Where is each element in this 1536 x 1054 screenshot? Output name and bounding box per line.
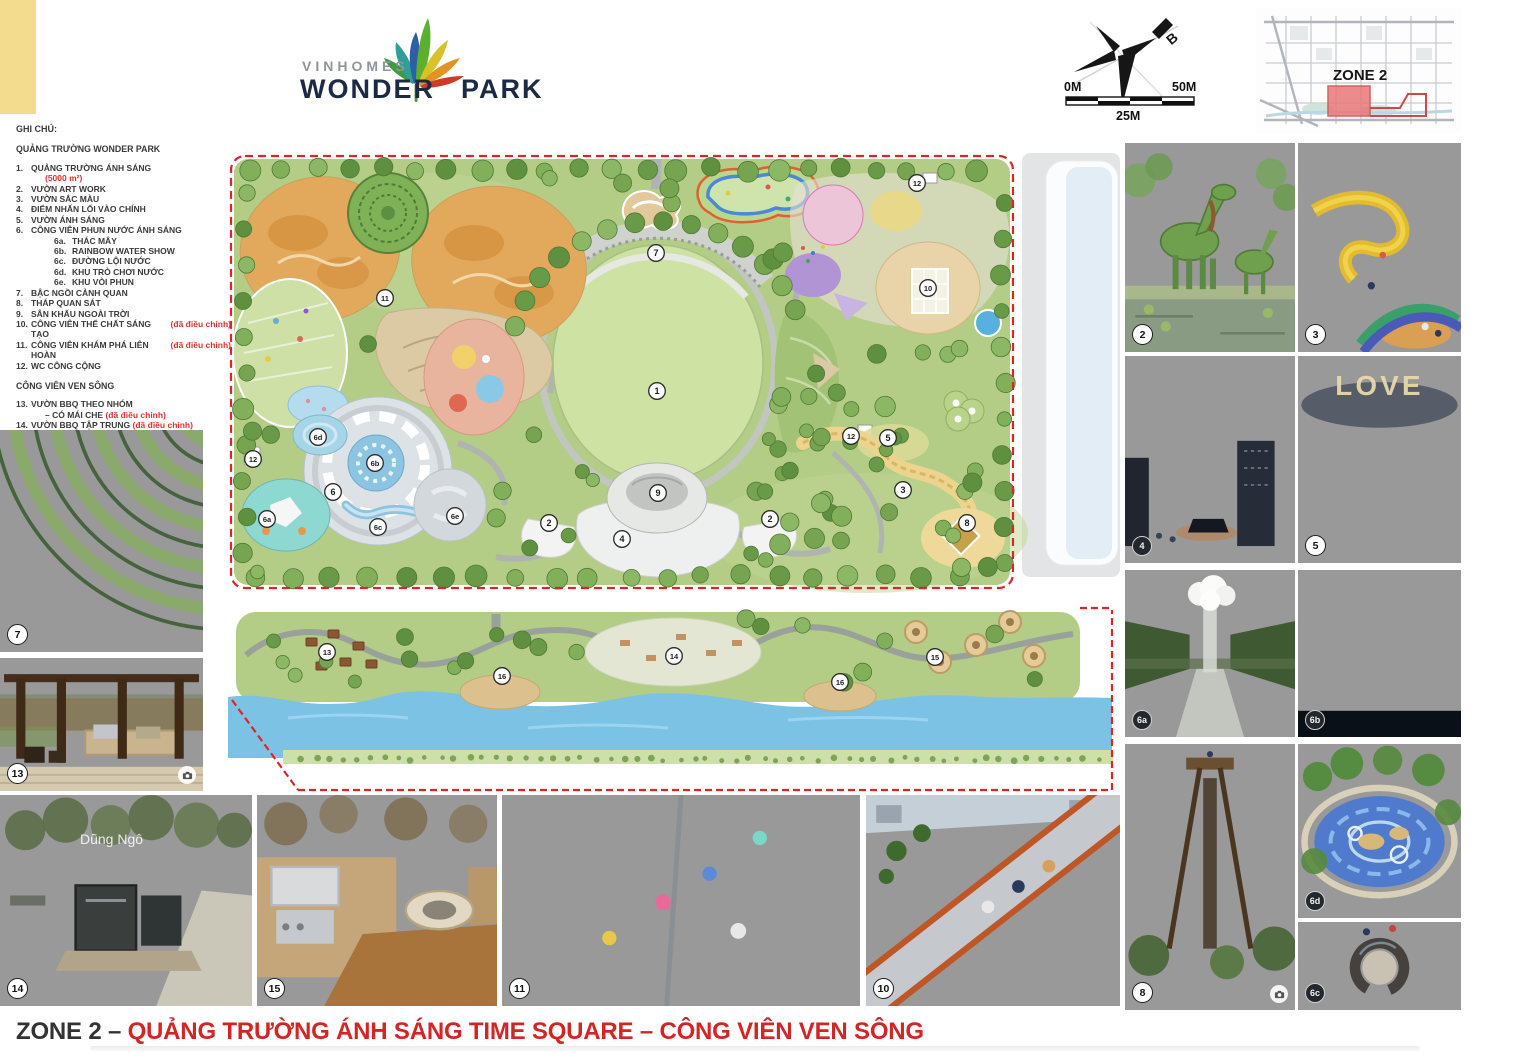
legend-item: 1.QUẢNG TRƯỜNG ÁNH SÁNG	[16, 163, 231, 173]
photo-observation-tower: 8	[1125, 744, 1295, 1010]
plan-marker-5: 5	[880, 430, 897, 447]
legend-heading: GHI CHÚ:	[16, 124, 231, 134]
page-title-main: QUẢNG TRƯỜNG ÁNH SÁNG TIME SQUARE – CÔNG…	[121, 1018, 924, 1045]
plan-marker-1: 1	[649, 383, 666, 400]
legend-item: 6c.ĐƯỜNG LỘI NƯỚC	[54, 256, 231, 266]
plan-marker-12: 12	[843, 428, 860, 445]
photo-badge: 7	[7, 624, 28, 645]
page-title: ZONE 2 – QUẢNG TRƯỜNG ÁNH SÁNG TIME SQUA…	[16, 1018, 924, 1046]
photo-led-flower-field: LOVE 5	[1298, 356, 1461, 563]
plan-marker-14: 14	[666, 648, 683, 665]
photo-pergola-bbq: 13	[0, 658, 203, 791]
legend-item: 9.SÂN KHẤU NGOÀI TRỜI	[16, 309, 231, 319]
scale-start: 0M	[1064, 80, 1081, 94]
footer-divider	[90, 1046, 1420, 1051]
photo-badge: 3	[1305, 324, 1326, 345]
plan-marker-10: 10	[920, 280, 937, 297]
photo-watermark: Dũng Ngô	[80, 831, 143, 847]
plan-marker-9: 9	[650, 485, 667, 502]
photo-ribbon-playground: 3	[1298, 143, 1461, 352]
svg-text:6a: 6a	[263, 515, 272, 524]
photo-badge: 6c	[1305, 983, 1325, 1003]
svg-text:15: 15	[931, 653, 939, 662]
page-title-zone: ZONE 2 –	[16, 1018, 121, 1045]
legend-item: 5.VƯỜN ÁNH SÁNG	[16, 215, 231, 225]
plan-marker-16: 16	[832, 674, 849, 691]
plan-marker-8: 8	[959, 515, 976, 532]
river-strip: 1316141615	[228, 608, 1113, 790]
legend-item: 7.BẬC NGỒI CẢNH QUAN	[16, 288, 231, 298]
photo-badge: 8	[1132, 982, 1153, 1003]
svg-text:6: 6	[330, 487, 335, 497]
legend-item: 10.CÔNG VIÊN THỂ CHẤT SÁNG TẠO(đã điều c…	[16, 319, 231, 340]
logo-brand: VINHOMES	[302, 58, 409, 74]
photo-amphitheater: 7	[0, 430, 203, 652]
plan-marker-3: 3	[895, 482, 912, 499]
photo-park-bbq-station: Dũng Ngô 14	[0, 795, 252, 1006]
legend-item: 6a.THÁC MÂY	[54, 236, 231, 246]
locator-map: ZONE 2	[1256, 8, 1461, 133]
svg-text:10: 10	[924, 284, 932, 293]
photo-badge: 10	[873, 978, 894, 999]
svg-text:13: 13	[323, 648, 331, 657]
plan-marker-2: 2	[762, 511, 779, 528]
photo-rope-climbing-net: 11	[502, 795, 860, 1006]
photo-cloud-machine: 6a	[1125, 570, 1295, 737]
scale-bar: 0M 50M 25M	[1056, 78, 1208, 124]
svg-text:6b: 6b	[371, 459, 380, 468]
legend-item: 11.CÔNG VIÊN KHÁM PHÁ LIÊN HOÀN(đã điều …	[16, 340, 231, 361]
logo-name-left: WONDER	[300, 74, 435, 104]
photo-badge: 15	[264, 978, 285, 999]
topiary-horse	[1161, 185, 1236, 289]
photo-badge: 6d	[1305, 891, 1325, 911]
legend-item: (5000 m²)	[30, 173, 231, 183]
svg-text:3: 3	[900, 485, 905, 495]
legend-item: 6b.RAINBOW WATER SHOW	[54, 246, 231, 256]
legend: GHI CHÚ: QUẢNG TRƯỜNG WONDER PARK1.QUẢNG…	[16, 124, 231, 451]
legend-item: 4.ĐIỂM NHẤN LỐI VÀO CHÍNH	[16, 204, 231, 214]
svg-text:12: 12	[913, 179, 921, 188]
plan-marker-6a: 6a	[259, 511, 276, 528]
svg-text:4: 4	[619, 534, 624, 544]
plan-marker-7: 7	[648, 245, 665, 262]
logo-name-right: PARK	[461, 74, 544, 104]
plan-marker-16: 16	[494, 668, 511, 685]
photo-badge: 13	[7, 763, 28, 784]
scale-end: 50M	[1172, 80, 1196, 94]
svg-text:11: 11	[381, 294, 389, 303]
svg-text:2: 2	[546, 518, 551, 528]
legend-item: 8.THÁP QUAN SÁT	[16, 298, 231, 308]
svg-text:12: 12	[249, 455, 257, 464]
svg-text:9: 9	[655, 488, 660, 498]
plan-marker-6: 6	[325, 484, 342, 501]
photo-badge: 2	[1132, 324, 1153, 345]
plan-marker-4: 4	[614, 531, 631, 548]
presentation-board: VINHOMES WONDERPARK GHI CHÚ: QUẢNG TRƯỜN…	[0, 0, 1536, 1054]
photo-badge: 5	[1305, 535, 1326, 556]
svg-text:6d: 6d	[314, 433, 323, 442]
svg-text:2: 2	[767, 514, 772, 524]
plan-marker-15: 15	[927, 649, 944, 666]
plan-marker-6e: 6e	[447, 508, 464, 525]
color-swatch	[0, 0, 36, 114]
photo-badge: 11	[509, 978, 530, 999]
camera-icon	[178, 766, 196, 784]
logo-name: WONDERPARK	[300, 74, 544, 105]
svg-text:8: 8	[964, 518, 969, 528]
photo-badge: 4	[1132, 536, 1152, 556]
legend-item: 6.CÔNG VIÊN PHUN NƯỚC ÁNH SÁNG	[16, 225, 231, 235]
photo-aqua-playground: 6d	[1298, 744, 1461, 918]
plan-marker-12: 12	[909, 175, 926, 192]
locator-zone-label: ZONE 2	[1333, 67, 1387, 84]
legend-section-title: QUẢNG TRƯỜNG WONDER PARK	[16, 144, 231, 154]
plan-marker-6b: 6b	[367, 455, 384, 472]
photo-badge: 6b	[1305, 710, 1325, 730]
plan-marker-11: 11	[377, 290, 394, 307]
photo-rainbow-fountain: 6b	[1298, 570, 1461, 737]
plan-marker-13: 13	[319, 644, 336, 661]
photo-stone-water-circle: 6c	[1298, 922, 1461, 1010]
topiary-horse-2	[1236, 230, 1279, 295]
plan-marker-2: 2	[541, 515, 558, 532]
legend-item: 6e.KHU VÒI PHUN	[54, 277, 231, 287]
svg-text:14: 14	[670, 652, 679, 661]
legend-item: 13.VƯỜN BBQ THEO NHÓM	[16, 399, 231, 409]
svg-text:6c: 6c	[374, 523, 382, 532]
legend-item: – CÓ MÁI CHE (đã điều chỉnh)	[30, 410, 231, 420]
photo-topiary-animals: 2	[1125, 143, 1295, 352]
photo-badge: 6a	[1132, 710, 1152, 730]
legend-item: 2.VƯỜN ART WORK	[16, 184, 231, 194]
legend-item: 14.VƯỜN BBQ TẬP TRUNG (đã điều chỉnh)	[16, 420, 231, 430]
legend-item: 12.WC CÔNG CỘNG	[16, 361, 231, 371]
master-plan-map: 719422111210125381266a6b6c6d6e	[228, 153, 1120, 798]
legend-item: 6d.KHU TRÒ CHƠI NƯỚC	[54, 267, 231, 277]
photo-badge: 14	[7, 978, 28, 999]
plan-marker-12: 12	[245, 451, 262, 468]
camera-icon	[1270, 985, 1288, 1003]
photo-stone-bbq: 15	[257, 795, 497, 1006]
led-sign-text: LOVE	[1335, 370, 1423, 401]
svg-text:6e: 6e	[451, 512, 459, 521]
scale-middle: 25M	[1116, 109, 1140, 123]
plan-marker-6c: 6c	[370, 519, 387, 536]
svg-text:1: 1	[654, 386, 659, 396]
photo-hill-roller-slide: 10	[866, 795, 1120, 1006]
svg-text:7: 7	[653, 248, 658, 258]
photo-mosaic-tower: 4	[1125, 356, 1295, 563]
legend-item: 3.VƯỜN SẮC MÀU	[16, 194, 231, 204]
svg-text:16: 16	[836, 678, 844, 687]
road-strip	[1022, 153, 1120, 577]
svg-text:16: 16	[498, 672, 506, 681]
legend-body: QUẢNG TRƯỜNG WONDER PARK1.QUẢNG TRƯỜNG Á…	[16, 144, 231, 451]
svg-text:5: 5	[885, 433, 890, 443]
legend-section-title: CÔNG VIÊN VEN SÔNG	[16, 381, 231, 391]
plan-marker-6d: 6d	[310, 429, 327, 446]
svg-text:12: 12	[847, 432, 855, 441]
